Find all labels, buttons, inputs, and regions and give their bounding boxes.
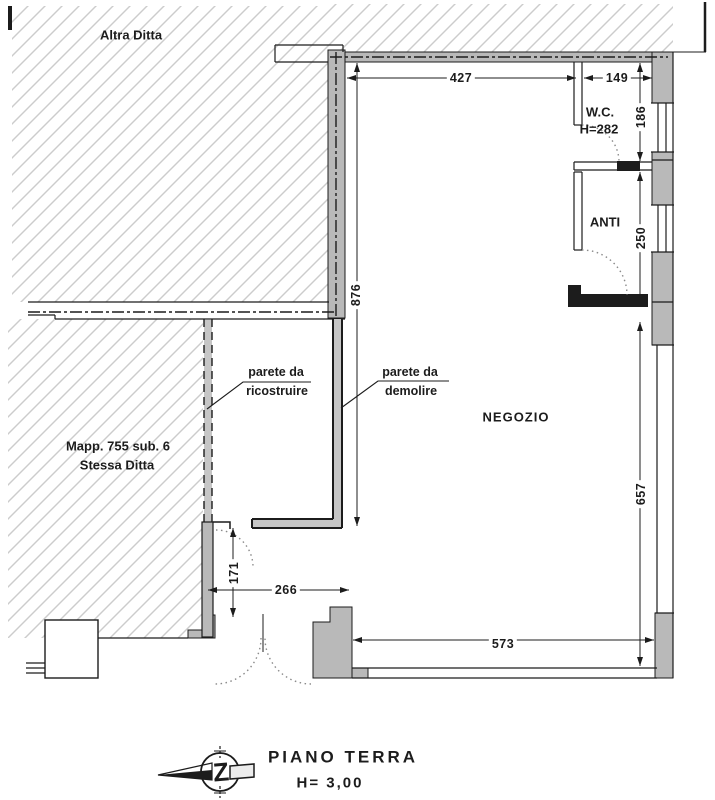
hatch-top-strip bbox=[333, 4, 673, 52]
outlined-pier bbox=[45, 620, 98, 678]
anti-bottom-wall bbox=[568, 285, 648, 307]
wc-wall-pier bbox=[617, 161, 640, 171]
dim-573: 573 bbox=[489, 638, 517, 651]
label-negozio: NEGOZIO bbox=[483, 411, 550, 424]
plan-title: PIANO TERRA bbox=[268, 749, 418, 766]
entrance-door-arc-left bbox=[215, 638, 261, 684]
dim-171: 171 bbox=[228, 559, 241, 587]
shopfront-pier bbox=[313, 607, 352, 678]
label-rebuild-2: ricostruire bbox=[246, 385, 308, 398]
label-demolish-2: demolire bbox=[385, 385, 437, 398]
label-mappale-1: Mapp. 755 sub. 6 bbox=[66, 440, 170, 453]
dim-427: 427 bbox=[447, 72, 475, 85]
right-wall-upper bbox=[652, 52, 673, 345]
north-arrow: Z bbox=[158, 746, 254, 798]
label-rebuild-1: parete da bbox=[248, 366, 304, 379]
label-wc: W.C. bbox=[586, 106, 614, 119]
anti-door-arc bbox=[582, 250, 627, 295]
dim-149: 149 bbox=[603, 72, 631, 85]
north-flag bbox=[230, 764, 254, 779]
entrance-door-arc-right bbox=[265, 638, 311, 684]
label-wc-height: H=282 bbox=[580, 123, 619, 136]
plan-title-height: H= 3,00 bbox=[297, 776, 364, 791]
north-letter: Z bbox=[212, 756, 231, 787]
label-altra-ditta: Altra Ditta bbox=[100, 29, 162, 42]
label-mappale-2: Stessa Ditta bbox=[80, 459, 154, 472]
window-1 bbox=[651, 103, 674, 152]
dim-186: 186 bbox=[635, 103, 648, 131]
hatch-mappale bbox=[8, 319, 203, 638]
label-demolish-1: parete da bbox=[382, 366, 438, 379]
floor-plan-drawing: Z Altra Ditta Mapp. 755 sub. 6 Stessa Di… bbox=[0, 0, 715, 800]
window-2 bbox=[651, 205, 674, 252]
floor-plan-geometry: Z bbox=[0, 0, 715, 800]
dim-250: 250 bbox=[635, 224, 648, 252]
corner-mark-left bbox=[8, 6, 12, 30]
label-anti: ANTI bbox=[590, 216, 620, 229]
pier-stub bbox=[352, 668, 368, 678]
wall-to-demolish bbox=[252, 319, 342, 528]
hatch-altra-ditta bbox=[12, 6, 333, 302]
dim-876: 876 bbox=[350, 281, 363, 309]
north-needle-fill bbox=[158, 770, 212, 780]
dim-266: 266 bbox=[272, 584, 300, 597]
right-pier bbox=[655, 613, 673, 678]
dim-657: 657 bbox=[635, 480, 648, 508]
